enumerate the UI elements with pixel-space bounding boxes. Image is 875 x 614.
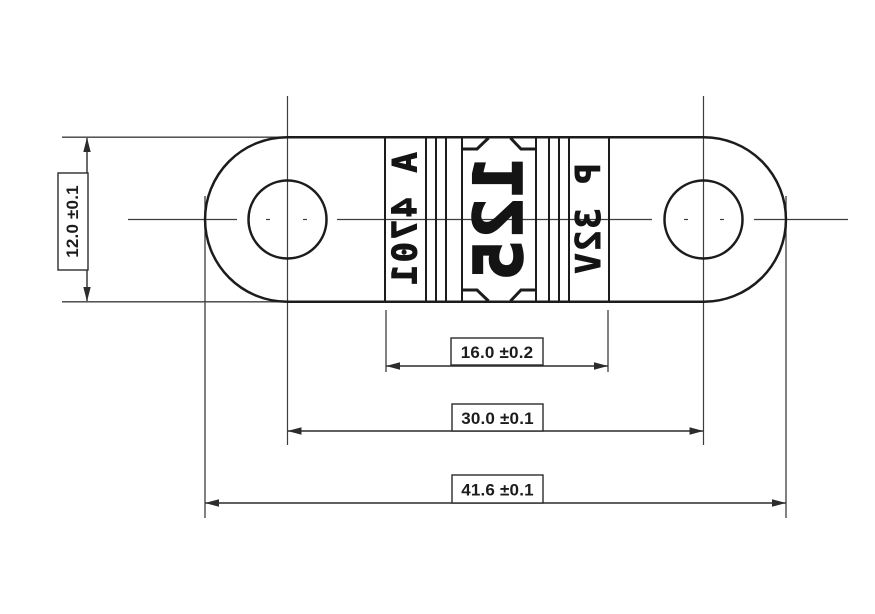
- top-notch-left: [462, 138, 489, 149]
- dim-label-element-width: 16.0 ±0.2: [461, 343, 534, 362]
- marking-voltage-rating: P 32V: [569, 163, 609, 275]
- drawing-canvas: A 4701 125 P 32V 12.0 ±0.1 16.0 ±0.2 30.…: [0, 0, 875, 614]
- arrowhead-up: [83, 138, 90, 153]
- arrowhead-right: [690, 427, 704, 434]
- dim-label-height: 12.0 ±0.1: [63, 185, 82, 258]
- top-notch-right: [511, 138, 537, 149]
- arrowhead-left: [386, 362, 400, 369]
- bottom-notch-right: [511, 290, 537, 301]
- marking-amperage-code: A 4701: [386, 152, 426, 287]
- fuse-technical-drawing: A 4701 125 P 32V 12.0 ±0.1 16.0 ±0.2 30.…: [0, 0, 875, 614]
- arrowhead-left: [205, 499, 219, 506]
- dimension-lines: [83, 138, 786, 507]
- arrowhead-left: [288, 427, 302, 434]
- arrowhead-right: [594, 362, 608, 369]
- dim-label-hole-spacing: 30.0 ±0.1: [461, 409, 534, 428]
- bottom-notch-left: [462, 290, 489, 301]
- dim-label-overall-length: 41.6 ±0.1: [461, 481, 534, 500]
- marking-current-rating: 125: [461, 157, 538, 282]
- fuse-markings: A 4701 125 P 32V: [386, 152, 610, 287]
- arrowhead-right: [772, 499, 786, 506]
- arrowhead-down: [83, 287, 90, 302]
